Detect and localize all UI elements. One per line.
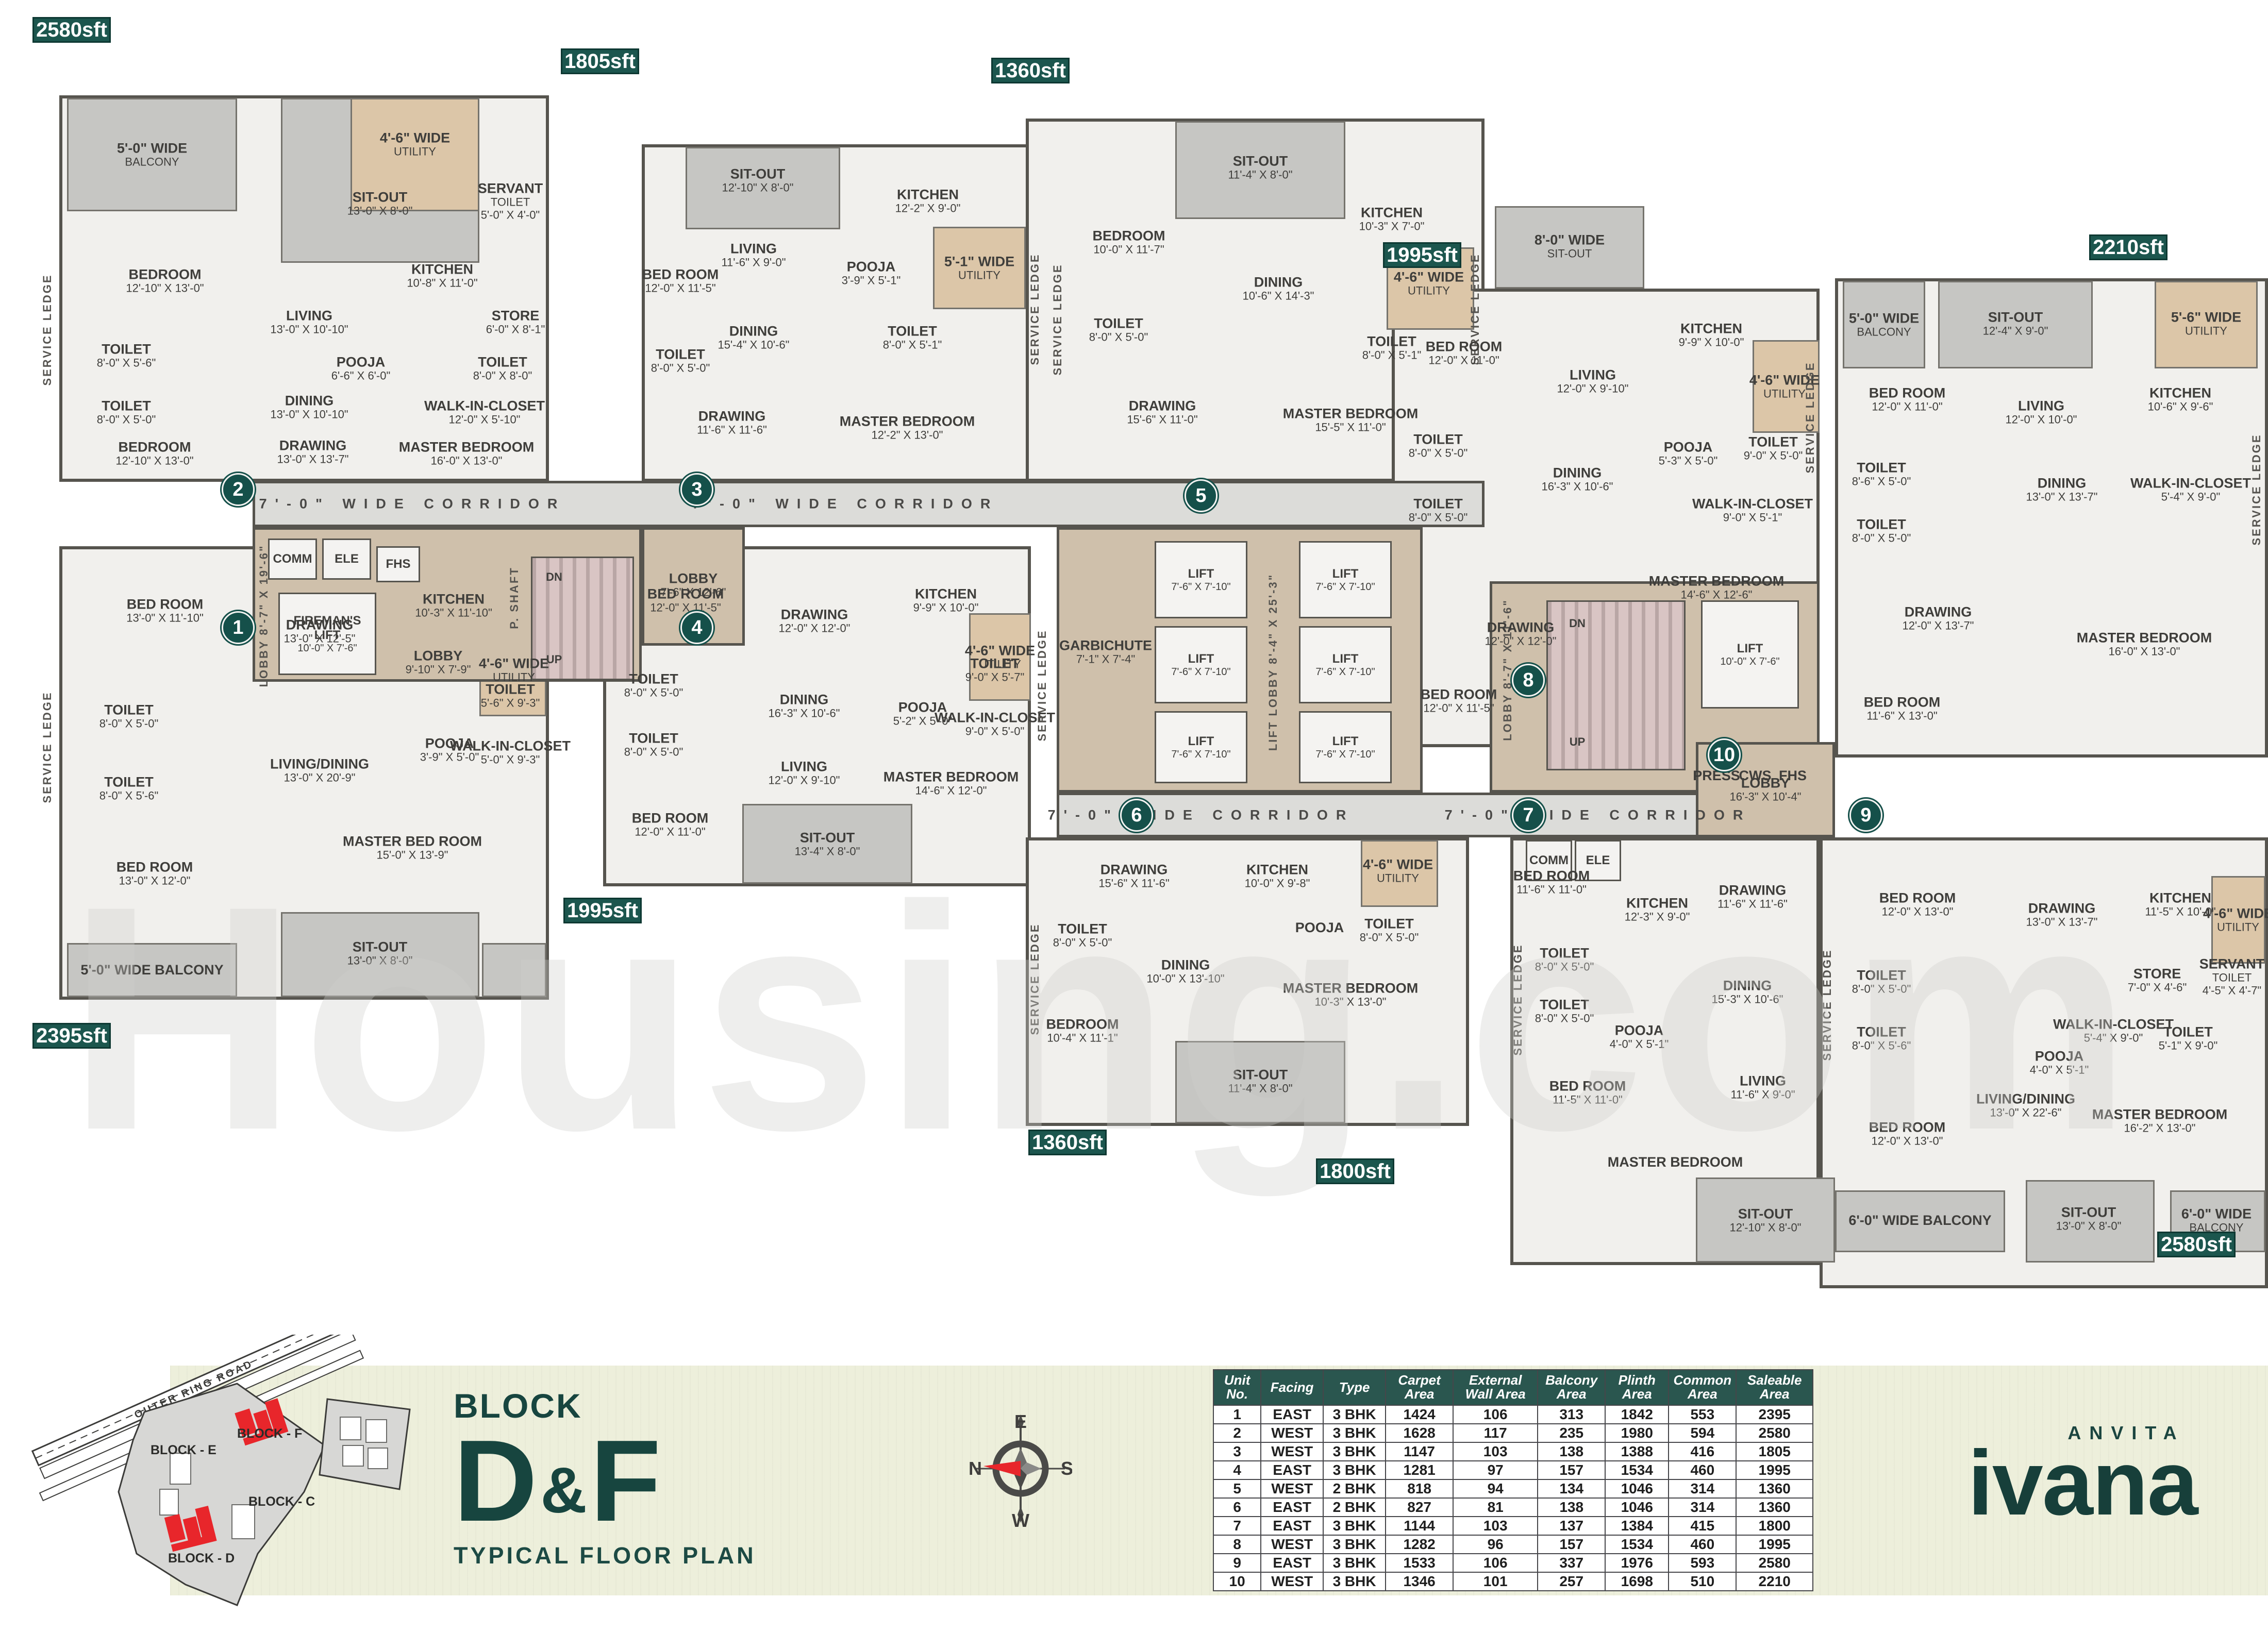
room-label: MASTER BEDROOM16'-2" X 13'-0" xyxy=(2092,1107,2228,1135)
table-cell: 1282 xyxy=(1386,1535,1453,1554)
room-label: KITCHEN12'-3" X 9'-0" xyxy=(1625,896,1690,924)
room-label: 4'-6" WIDEUTILITY xyxy=(479,656,549,684)
room-label: DRAWING11'-6" X 11'-6" xyxy=(697,409,767,437)
table-cell: 103 xyxy=(1453,1442,1538,1461)
room-label: BED ROOM12'-0" X 11'-0" xyxy=(632,811,709,839)
room-label: SIT-OUT13'-4" X 8'-0" xyxy=(795,830,860,859)
room-label: SIT-OUT12'-10" X 8'-0" xyxy=(722,166,794,195)
room-label: DRAWING12'-0" X 13'-7" xyxy=(1903,604,1974,633)
room-label: KITCHEN10'-3" X 11'-10" xyxy=(415,592,492,620)
block-f-label: BLOCK - F xyxy=(237,1426,302,1441)
table-cell: 1842 xyxy=(1605,1405,1669,1424)
table-cell: WEST xyxy=(1261,1479,1323,1498)
table-cell: 3 BHK xyxy=(1323,1405,1386,1424)
table-cell: 257 xyxy=(1538,1572,1605,1591)
lift-box: LIFT10'-0" X 7'-6" xyxy=(1701,600,1799,709)
room-label: TOILET5'-1" X 9'-0" xyxy=(2159,1024,2218,1053)
table-cell: 460 xyxy=(1669,1461,1736,1479)
room-label: MASTER BEDROOM16'-0" X 13'-0" xyxy=(399,440,535,468)
area-badge: 2210sft xyxy=(2089,234,2167,260)
room-label: MASTER BEDROOM15'-5" X 11'-0" xyxy=(1283,406,1419,434)
room-label: 5'-0" WIDEBALCONY xyxy=(117,141,187,169)
room-label: LIVING/DINING13'-0" X 20'-9" xyxy=(270,756,369,785)
room-label: 5'-0" WIDEBALCONY xyxy=(1849,311,1919,339)
room-label: TOILET8'-0" X 5'-0" xyxy=(1409,432,1468,460)
corridor-label: 7'-0" WIDE CORRIDOR xyxy=(692,496,999,512)
room-label: DINING15'-4" X 10'-6" xyxy=(718,324,790,352)
room-label: 8'-0" WIDESIT-OUT xyxy=(1535,232,1605,261)
table-cell: EAST xyxy=(1261,1461,1323,1479)
room-label: BED ROOM12'-0" X 11'-0" xyxy=(1426,339,1503,367)
room-label: SERVANTTOILET5'-0" X 4'-0" xyxy=(478,180,543,221)
table-cell: 510 xyxy=(1669,1572,1736,1591)
table-cell: 2210 xyxy=(1736,1572,1813,1591)
lift-box: COMM xyxy=(268,539,317,580)
room-label: LOBBY16'-3" X 10'-4" xyxy=(1730,776,1802,804)
table-cell: 1698 xyxy=(1605,1572,1669,1591)
room-label: TOILET8'-0" X 5'-0" xyxy=(624,731,683,759)
table-row: 10WEST3 BHK134610125716985102210 xyxy=(1213,1572,1813,1591)
table-cell: 593 xyxy=(1669,1554,1736,1572)
table-row: 9EAST3 BHK153310633719765932580 xyxy=(1213,1554,1813,1572)
table-cell: 1346 xyxy=(1386,1572,1453,1591)
unit-number-circle: 2 xyxy=(222,473,255,506)
table-cell: 3 BHK xyxy=(1323,1517,1386,1535)
area-badge: 1360sft xyxy=(991,58,1070,83)
room-label: DRAWING13'-0" X 13'-7" xyxy=(277,438,349,466)
table-cell: 1534 xyxy=(1605,1461,1669,1479)
table-row: 8WEST3 BHK12829615715344601995 xyxy=(1213,1535,1813,1554)
balcony-area xyxy=(482,943,546,997)
room-label: BED ROOM12'-0" X 11'-5" xyxy=(1421,687,1497,715)
table-cell: 157 xyxy=(1538,1535,1605,1554)
room-label: 5'-1" WIDEUTILITY xyxy=(944,254,1014,282)
table-cell: 106 xyxy=(1453,1554,1538,1572)
table-cell: 3 BHK xyxy=(1323,1461,1386,1479)
service-ledge-label: SERVICE LEDGE xyxy=(1804,361,1817,473)
table-cell: EAST xyxy=(1261,1517,1323,1535)
table-cell: 1980 xyxy=(1605,1424,1669,1442)
corridor-label: 7'-0" WIDE CORRIDOR xyxy=(1445,807,1752,823)
room-label: WALK-IN-CLOSET5'-4" X 9'-0" xyxy=(2053,1017,2174,1045)
unit-number-circle: 6 xyxy=(1120,799,1153,832)
room-label: TOILET8'-0" X 5'-0" xyxy=(1360,916,1419,945)
stair-direction-label: DN xyxy=(1569,617,1586,630)
area-badge: 1800sft xyxy=(1316,1158,1394,1184)
table-cell: 1388 xyxy=(1605,1442,1669,1461)
room-label: 4'-6" WIDEUTILITY xyxy=(2203,906,2268,934)
room-label: BEDROOM12'-10" X 13'-0" xyxy=(126,267,204,295)
room-label: DRAWING11'-6" X 11'-6" xyxy=(1717,883,1788,911)
table-cell: 4 xyxy=(1213,1461,1261,1479)
room-label: TOILET8'-0" X 8'-0" xyxy=(473,355,532,383)
room-label: TOILET5'-6" X 9'-3" xyxy=(481,682,540,710)
header-common-area: Common Area xyxy=(1669,1370,1736,1405)
room-label: BED ROOM12'-0" X 11'-5" xyxy=(647,586,724,615)
room-label: 6'-0" WIDEBALCONY xyxy=(2181,1206,2252,1235)
room-label: MASTER BEDROOM14'-6" X 12'-0" xyxy=(883,769,1019,798)
corridor-label: 7'-0" WIDE CORRIDOR xyxy=(259,496,566,512)
table-cell: 2395 xyxy=(1736,1405,1813,1424)
table-cell: 9 xyxy=(1213,1554,1261,1572)
table-cell: 460 xyxy=(1669,1535,1736,1554)
room-label: DRAWING12'-0" X 12'-0" xyxy=(779,607,851,635)
room-label: MASTER BEDROOM12'-2" X 13'-0" xyxy=(840,414,975,442)
table-cell: 1144 xyxy=(1386,1517,1453,1535)
area-badge: 1995sft xyxy=(563,898,642,923)
table-cell: 1 xyxy=(1213,1405,1261,1424)
room-label: WALK-IN-CLOSET9'-0" X 5'-1" xyxy=(1692,496,1813,525)
table-cell: 235 xyxy=(1538,1424,1605,1442)
table-cell: 97 xyxy=(1453,1461,1538,1479)
room-label: BED ROOM12'-0" X 13'-0" xyxy=(1879,890,1956,919)
table-cell: 2 BHK xyxy=(1323,1498,1386,1517)
room-label: TOILET8'-0" X 5'-0" xyxy=(1409,496,1468,525)
table-cell: WEST xyxy=(1261,1442,1323,1461)
table-row: 3WEST3 BHK114710313813884161805 xyxy=(1213,1442,1813,1461)
room-label: DRAWING13'-0" X 13'-7" xyxy=(2026,901,2098,929)
room-label: BED ROOM13'-0" X 11'-10" xyxy=(126,597,204,625)
block-e-label: BLOCK - E xyxy=(151,1443,216,1457)
table-cell: 1360 xyxy=(1736,1498,1813,1517)
table-cell: 416 xyxy=(1669,1442,1736,1461)
room-label: TOILET8'-0" X 5'-1" xyxy=(1362,334,1422,362)
header-plinth-area: Plinth Area xyxy=(1605,1370,1669,1405)
table-cell: 415 xyxy=(1669,1517,1736,1535)
room-label: LOBBY9'-10" X 7'-9" xyxy=(406,648,471,677)
room-label: LIVING/DINING13'-0" X 22'-6" xyxy=(1976,1091,2075,1120)
stair-direction-label: UP xyxy=(1570,735,1586,749)
room-label: STORE6'-0" X 8'-1" xyxy=(486,308,545,336)
unit-number-circle: 9 xyxy=(1849,799,1882,832)
table-row: 5WEST2 BHK8189413410463141360 xyxy=(1213,1479,1813,1498)
room-label: TOILET9'-0" X 5'-7" xyxy=(965,656,1025,684)
area-badge: 1995sft xyxy=(1383,242,1461,268)
room-label: DINING15'-3" X 10'-6" xyxy=(1712,978,1783,1006)
room-label: MASTER BEDROOM xyxy=(1608,1154,1743,1170)
compass-bottom: W xyxy=(1012,1510,1029,1528)
lift-box: LIFT7'-6" X 7'-10" xyxy=(1299,626,1392,703)
table-cell: 3 BHK xyxy=(1323,1554,1386,1572)
room-label: TOILET8'-0" X 5'-0" xyxy=(651,347,710,375)
corridor-label: 7'-0" WIDE CORRIDOR xyxy=(1048,807,1355,823)
room-label: WALK-IN-CLOSET5'-0" X 9'-3" xyxy=(450,738,571,767)
table-cell: 94 xyxy=(1453,1479,1538,1498)
room-label: BED ROOM13'-0" X 12'-0" xyxy=(116,860,193,888)
block-name: D & F xyxy=(454,1428,756,1533)
table-cell: 5 xyxy=(1213,1479,1261,1498)
compass-right: S xyxy=(1061,1458,1072,1479)
lift-box: FHS xyxy=(376,546,420,582)
room-label: SIT-OUT11'-4" X 8'-0" xyxy=(1228,1067,1292,1096)
table-cell: 1628 xyxy=(1386,1424,1453,1442)
table-cell: 138 xyxy=(1538,1442,1605,1461)
service-ledge-label: SERVICE LEDGE xyxy=(1036,629,1049,741)
room-label: DINING16'-3" X 10'-6" xyxy=(1542,465,1613,494)
table-cell: 138 xyxy=(1538,1498,1605,1517)
service-ledge-label: SERVICE LEDGE xyxy=(1028,253,1042,365)
table-cell: 1995 xyxy=(1736,1535,1813,1554)
service-ledge-label: SERVICE LEDGE xyxy=(1511,944,1525,1055)
unit-number-circle: 1 xyxy=(222,611,255,644)
stair-direction-label: DN xyxy=(546,570,562,584)
area-badge: 1360sft xyxy=(1028,1130,1107,1155)
table-cell: 103 xyxy=(1453,1517,1538,1535)
service-ledge-label: LOBBY 8'-7" X 19'-6" xyxy=(257,545,271,687)
lift-box: LIFT7'-6" X 7'-10" xyxy=(1299,711,1392,783)
table-cell: 818 xyxy=(1386,1479,1453,1498)
table-cell: 2 BHK xyxy=(1323,1479,1386,1498)
table-cell: EAST xyxy=(1261,1498,1323,1517)
room-label: SIT-OUT12'-4" X 9'-0" xyxy=(1983,310,2048,338)
room-label: 5'-6" WIDEUTILITY xyxy=(2171,310,2241,338)
room-label: SIT-OUT13'-0" X 8'-0" xyxy=(347,939,413,968)
plan-subtitle: TYPICAL FLOOR PLAN xyxy=(454,1542,756,1569)
table-cell: 337 xyxy=(1538,1554,1605,1572)
room-label: DINING10'-6" X 14'-3" xyxy=(1243,275,1314,303)
header-type: Type xyxy=(1323,1370,1386,1405)
brand-logo: ANVITA ivana xyxy=(1907,1422,2258,1522)
room-label: BED ROOM11'-6" X 13'-0" xyxy=(1864,695,1941,723)
room-label: TOILET8'-0" X 5'-0" xyxy=(97,398,156,427)
room-label: DINING16'-3" X 10'-6" xyxy=(769,692,840,720)
room-label: KITCHEN9'-9" X 10'-0" xyxy=(913,586,979,615)
table-cell: 96 xyxy=(1453,1535,1538,1554)
table-cell: 3 BHK xyxy=(1323,1442,1386,1461)
service-ledge-label: LIFT LOBBY 8'-4" X 25'-3" xyxy=(1266,574,1280,751)
block-c-label: BLOCK - C xyxy=(248,1494,315,1509)
room-label: POOJA6'-6" X 6'-0" xyxy=(331,355,391,383)
service-ledge-label: P. SHAFT xyxy=(508,566,521,629)
lift-box: LIFT7'-6" X 7'-10" xyxy=(1299,541,1392,618)
service-ledge-label: SERVICE LEDGE xyxy=(41,274,54,385)
room-label: LIVING12'-0" X 9'-10" xyxy=(769,759,840,787)
compass-rose: E S W N xyxy=(969,1409,1072,1528)
room-label: LIVING12'-0" X 10'-0" xyxy=(2006,398,2077,427)
block-letter-d: D xyxy=(454,1428,538,1533)
table-cell: 2580 xyxy=(1736,1424,1813,1442)
room-label: KITCHEN9'-9" X 10'-0" xyxy=(1679,321,1744,349)
room-label: 6'-0" WIDE BALCONY xyxy=(1848,1213,1991,1228)
compass-top: E xyxy=(1014,1411,1027,1432)
table-cell: 1976 xyxy=(1605,1554,1669,1572)
area-badge: 1805sft xyxy=(561,48,639,74)
service-ledge-label: SERVICE LEDGE xyxy=(1051,263,1064,375)
room-label: BED ROOM12'-0" X 11'-0" xyxy=(1869,385,1946,414)
table-cell: 81 xyxy=(1453,1498,1538,1517)
table-row: 2WEST3 BHK162811723519805942580 xyxy=(1213,1424,1813,1442)
room-label: TOILET8'-0" X 5'-0" xyxy=(1535,997,1594,1025)
area-badge: 2580sft xyxy=(2157,1232,2236,1257)
header-unit-no: Unit No. xyxy=(1213,1370,1261,1405)
room-label: TOILET9'-0" X 5'-0" xyxy=(1744,434,1803,463)
area-badge: 2580sft xyxy=(32,17,111,43)
room-label: DRAWING12'-0" X 12'-0" xyxy=(1485,620,1557,648)
room-label: BEDROOM10'-4" X 11'-1" xyxy=(1046,1017,1119,1045)
room-label: TOILET8'-0" X 5'-6" xyxy=(97,342,156,370)
unit-number-circle: 4 xyxy=(680,611,713,644)
room-label: WALK-IN-CLOSET12'-0" X 5'-10" xyxy=(424,398,545,427)
table-cell: 1046 xyxy=(1605,1479,1669,1498)
table-cell: 1800 xyxy=(1736,1517,1813,1535)
table-row: 1EAST3 BHK142410631318425532395 xyxy=(1213,1405,1813,1424)
room-label: SIT-OUT13'-0" X 8'-0" xyxy=(347,190,413,218)
room-label: KITCHEN10'-6" X 9'-6" xyxy=(2148,385,2213,414)
table-cell: 553 xyxy=(1669,1405,1736,1424)
table-cell: 7 xyxy=(1213,1517,1261,1535)
table-cell: 1424 xyxy=(1386,1405,1453,1424)
room-label: DRAWING15'-6" X 11'-0" xyxy=(1127,398,1197,427)
table-header-row: Unit No. Facing Type Carpet Area Externa… xyxy=(1213,1370,1813,1405)
room-label: 4'-6" WIDEUTILITY xyxy=(1363,857,1433,885)
unit-number-circle: 8 xyxy=(1512,664,1545,697)
table-cell: 101 xyxy=(1453,1572,1538,1591)
ampersand: & xyxy=(541,1462,587,1520)
table-cell: 3 BHK xyxy=(1323,1535,1386,1554)
lift-box: LIFT7'-6" X 7'-10" xyxy=(1155,541,1247,618)
room-label: MASTER BEDROOM10'-3" X 13'-0" xyxy=(1283,981,1419,1009)
room-label: BED ROOM12'-0" X 11'-5" xyxy=(642,267,719,295)
header-external-wall-area: External Wall Area xyxy=(1453,1370,1538,1405)
room-label: LIVING13'-0" X 10'-10" xyxy=(270,308,348,336)
table-cell: WEST xyxy=(1261,1424,1323,1442)
table-cell: 10 xyxy=(1213,1572,1261,1591)
room-label: TOILET8'-0" X 5'-0" xyxy=(1053,921,1112,950)
room-label: BED ROOM11'-5" X 11'-0" xyxy=(1549,1079,1626,1107)
block-d-label: BLOCK - D xyxy=(168,1551,235,1566)
room-label: MASTER BEDROOM16'-0" X 13'-0" xyxy=(2077,630,2212,659)
unit-number-circle: 10 xyxy=(1708,738,1741,771)
compass-left: N xyxy=(969,1458,982,1479)
table-cell: 8 xyxy=(1213,1535,1261,1554)
room-label: TOILET8'-0" X 5'-6" xyxy=(1852,1024,1911,1053)
brand-ivana: ivana xyxy=(1907,1444,2258,1522)
room-label: TOILET8'-6" X 5'-0" xyxy=(1852,460,1911,489)
table-cell: 314 xyxy=(1669,1479,1736,1498)
title-block: BLOCK D & F TYPICAL FLOOR PLAN xyxy=(454,1386,756,1569)
room-label: BED ROOM11'-6" X 11'-0" xyxy=(1513,868,1590,897)
table-cell: WEST xyxy=(1261,1572,1323,1591)
room-label: TOILET8'-0" X 5'-1" xyxy=(883,324,942,352)
table-row: 7EAST3 BHK114410313713844151800 xyxy=(1213,1517,1813,1535)
service-ledge-label: SERVICE LEDGE xyxy=(2250,433,2263,545)
room-label: SIT-OUT13'-0" X 8'-0" xyxy=(2056,1205,2122,1233)
room-label: LIVING11'-6" X 9'-0" xyxy=(1730,1073,1795,1102)
room-label: BEDROOM12'-10" X 13'-0" xyxy=(115,440,193,468)
table-cell: 1384 xyxy=(1605,1517,1669,1535)
room-label: DRAWING13'-0" X 12'-5" xyxy=(284,617,356,646)
room-label: POOJA4'-0" X 5'-1" xyxy=(2030,1049,2089,1077)
room-label: KITCHEN10'-3" X 7'-0" xyxy=(1359,205,1425,233)
room-label: 4'-6" WIDEUTILITY xyxy=(380,130,450,159)
room-label: POOJA4'-0" X 5'-1" xyxy=(1610,1023,1669,1051)
table-row: 4EAST3 BHK12819715715344601995 xyxy=(1213,1461,1813,1479)
room-label: TOILET8'-0" X 5'-0" xyxy=(1089,316,1148,344)
room-label: MASTER BEDROOM14'-6" X 12'-6" xyxy=(1649,574,1785,602)
table-cell: EAST xyxy=(1261,1405,1323,1424)
table-cell: 1360 xyxy=(1736,1479,1813,1498)
header-facing: Facing xyxy=(1261,1370,1323,1405)
table-cell: 2 xyxy=(1213,1424,1261,1442)
table-cell: 157 xyxy=(1538,1461,1605,1479)
room-label: SERVANTTOILET4'-5" X 4'-7" xyxy=(2199,956,2265,997)
room-label: LIVING11'-6" X 9'-0" xyxy=(721,241,786,270)
table-cell: WEST xyxy=(1261,1535,1323,1554)
lift-box: LIFT7'-6" X 7'-10" xyxy=(1155,711,1247,783)
room-label: DINING13'-0" X 13'-7" xyxy=(2026,476,2098,504)
room-label: TOILET8'-0" X 5'-0" xyxy=(1852,517,1911,545)
area-badge: 2395sft xyxy=(32,1023,111,1049)
room-label: TOILET8'-0" X 5'-0" xyxy=(99,702,159,731)
room-label: BED ROOM12'-0" X 13'-0" xyxy=(1869,1120,1946,1148)
table-cell: 1147 xyxy=(1386,1442,1453,1461)
room-label: LIVING12'-0" X 9'-10" xyxy=(1557,367,1629,396)
table-cell: 1534 xyxy=(1605,1535,1669,1554)
table-cell: 3 BHK xyxy=(1323,1424,1386,1442)
room-label: KITCHEN12'-2" X 9'-0" xyxy=(895,187,961,215)
block-letter-f: F xyxy=(590,1428,661,1533)
header-saleable-area: Saleable Area xyxy=(1736,1370,1813,1405)
room-label: POOJA5'-3" X 5'-0" xyxy=(1659,440,1718,468)
table-cell: 117 xyxy=(1453,1424,1538,1442)
site-parcel-right xyxy=(320,1399,410,1489)
lift-box: LIFT7'-6" X 7'-10" xyxy=(1155,626,1247,703)
room-label: 5'-0" WIDE BALCONY xyxy=(80,962,223,978)
table-cell: 106 xyxy=(1453,1405,1538,1424)
header-carpet-area: Carpet Area xyxy=(1386,1370,1453,1405)
room-label: GARBICHUTE7'-1" X 7'-4" xyxy=(1059,638,1152,666)
room-label: TOILET8'-0" X 5'-0" xyxy=(1852,968,1911,996)
table-cell: 2580 xyxy=(1736,1554,1813,1572)
table-cell: 3 xyxy=(1213,1442,1261,1461)
site-location-map: OUTER RING ROAD SERVICE ROAD BLOCK - F B… xyxy=(15,1335,412,1634)
table-cell: EAST xyxy=(1261,1554,1323,1572)
unit-number-circle: 3 xyxy=(680,473,713,506)
table-cell: 1533 xyxy=(1386,1554,1453,1572)
table-cell: 1805 xyxy=(1736,1442,1813,1461)
service-ledge-label: SERVICE LEDGE xyxy=(1821,949,1834,1061)
unit-number-circle: 5 xyxy=(1185,479,1218,512)
room-label: TOILET8'-0" X 5'-0" xyxy=(624,671,683,700)
table-cell: 1046 xyxy=(1605,1498,1669,1517)
table-cell: 313 xyxy=(1538,1405,1605,1424)
room-label: BEDROOM10'-0" X 11'-7" xyxy=(1093,228,1165,257)
service-ledge-label: SERVICE LEDGE xyxy=(41,691,54,803)
table-cell: 1995 xyxy=(1736,1461,1813,1479)
room-label: 4'-6" WIDEUTILITY xyxy=(1394,270,1464,298)
table-cell: 3 BHK xyxy=(1323,1572,1386,1591)
area-table: Unit No. Facing Type Carpet Area Externa… xyxy=(1213,1369,1813,1591)
table-cell: 134 xyxy=(1538,1479,1605,1498)
room-label: POOJA xyxy=(1295,920,1344,935)
room-label: DINING10'-0" X 13'-10" xyxy=(1146,957,1224,986)
room-label: MASTER BED ROOM15'-0" X 13'-9" xyxy=(343,834,482,862)
table-cell: 314 xyxy=(1669,1498,1736,1517)
room-label: SIT-OUT12'-10" X 8'-0" xyxy=(1730,1206,1802,1235)
staircase xyxy=(1546,600,1686,770)
room-label: TOILET8'-0" X 5'-6" xyxy=(99,775,159,803)
table-cell: 827 xyxy=(1386,1498,1453,1517)
room-label: TOILET8'-0" X 5'-0" xyxy=(1535,946,1594,974)
room-label: WALK-IN-CLOSET5'-4" X 9'-0" xyxy=(2130,476,2251,504)
room-label: STORE7'-0" X 4'-6" xyxy=(2128,966,2187,995)
table-cell: 137 xyxy=(1538,1517,1605,1535)
header-balcony-area: Balcony Area xyxy=(1538,1370,1605,1405)
lift-box: ELE xyxy=(322,539,371,580)
table-row: 6EAST2 BHK8278113810463141360 xyxy=(1213,1498,1813,1517)
table-cell: 1281 xyxy=(1386,1461,1453,1479)
unit-number-circle: 7 xyxy=(1512,799,1545,832)
